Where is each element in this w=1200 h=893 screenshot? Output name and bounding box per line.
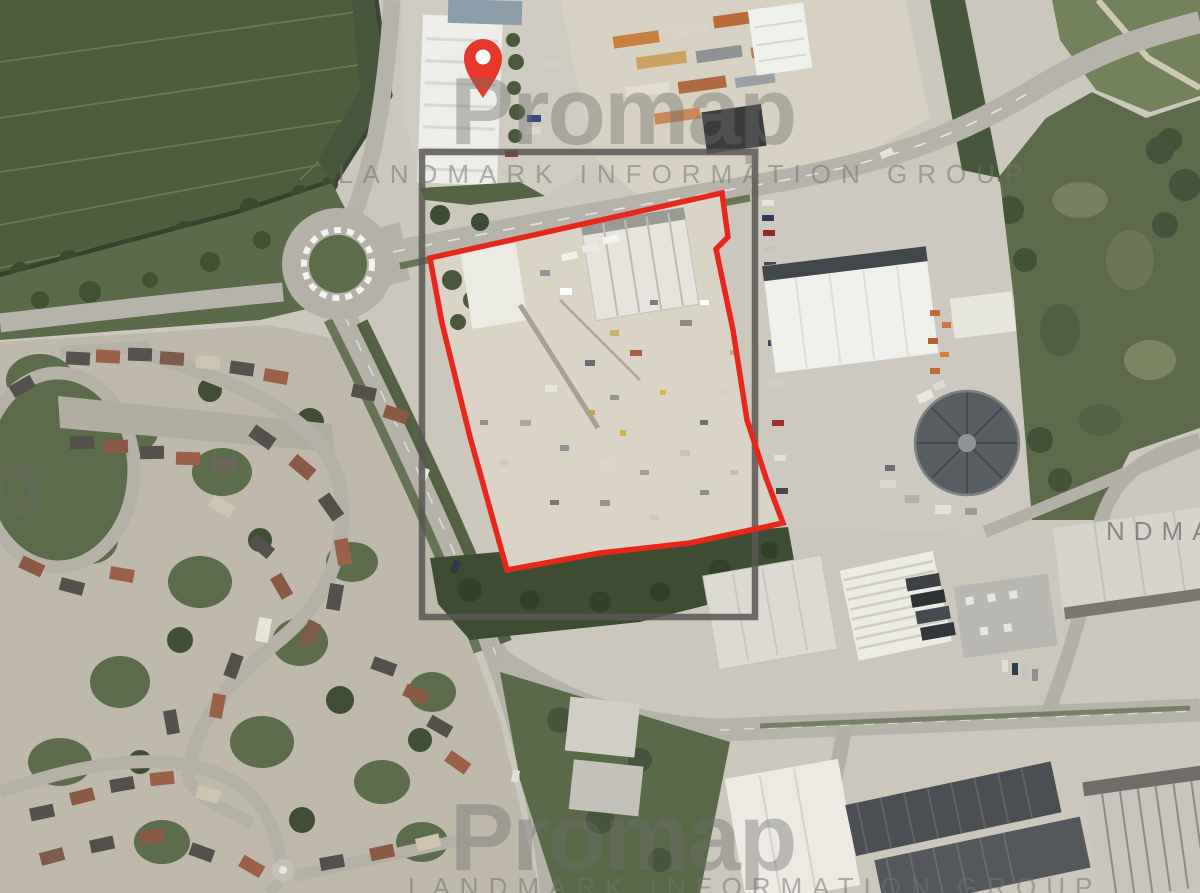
location-pin-icon[interactable] bbox=[464, 39, 502, 98]
aerial-map-canvas[interactable]: Promap LANDMARK INFORMATION GROUP Promap… bbox=[0, 0, 1200, 893]
map-overlays bbox=[0, 0, 1200, 893]
site-boundary-polygon[interactable] bbox=[430, 193, 783, 570]
pin-hole bbox=[476, 50, 491, 65]
